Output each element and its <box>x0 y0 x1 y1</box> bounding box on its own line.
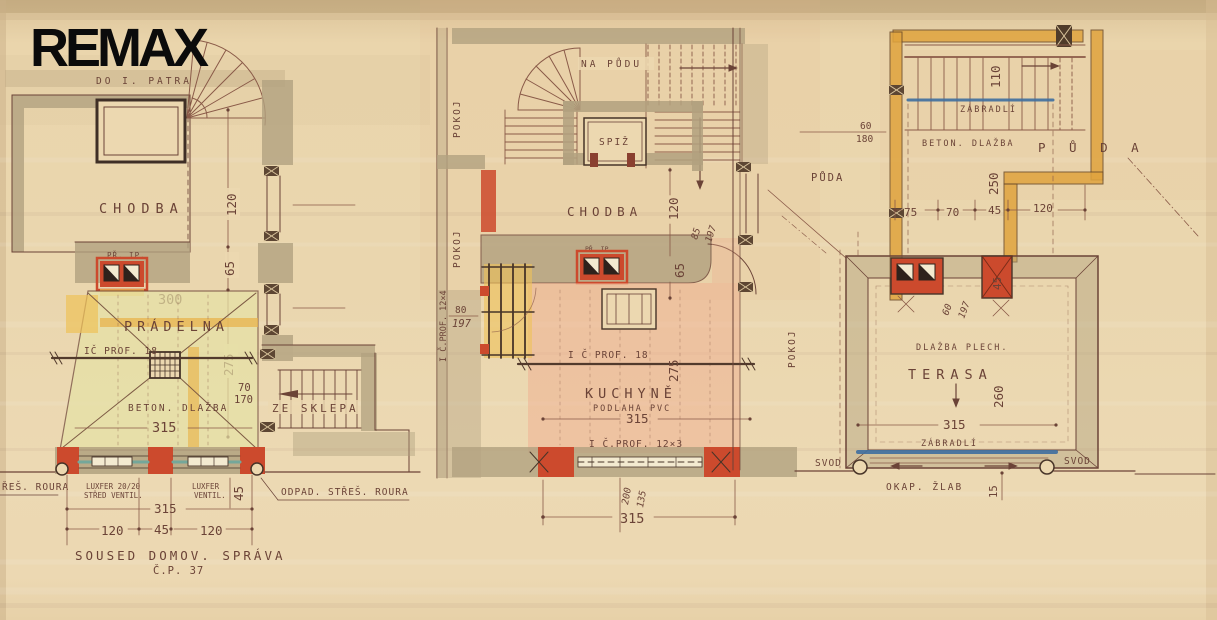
dim-45: 45 <box>154 522 169 537</box>
label-ze-sklepa: ZE SKLEPA <box>272 402 359 415</box>
label-puda: PŮDA <box>811 171 844 184</box>
balcony-ladder <box>480 264 536 358</box>
dim-75: 75 <box>904 206 917 219</box>
label-ic-prof-18: IČ PROF. 18 <box>84 345 158 357</box>
dim-110: 110 <box>988 65 1003 88</box>
dim-170: 170 <box>234 394 253 406</box>
dim-250: 250 <box>986 172 1001 195</box>
dim-275: 275 <box>666 359 681 382</box>
window-symbol <box>577 251 627 283</box>
label-beton-dlazba: BETON. DLAŽBA <box>922 137 1015 149</box>
dim-260: 260 <box>991 385 1006 408</box>
label-cp-37: Č.P. 37 <box>153 564 204 577</box>
remax-logo-text: REMAX <box>30 18 209 78</box>
dim-180: 180 <box>856 134 873 145</box>
dim-70: 70 <box>238 382 251 394</box>
label-dlazba-plech: DLAŽBA PLECH. <box>916 341 1009 353</box>
label-na-pudu: NA PŮDU <box>581 58 642 70</box>
label-spiz: SPIŽ <box>599 136 630 148</box>
label-pokoj-2: POKOJ <box>452 229 463 268</box>
label-prof-18: I Č PROF. 18 <box>568 349 649 361</box>
stairwell-opening <box>97 100 185 162</box>
label-pokoj-1: POKOJ <box>452 99 463 138</box>
label-pradelna: PRÁDELNA <box>124 318 229 335</box>
label-pokoj-3: POKOJ <box>787 329 798 368</box>
label-zabradli-bottom: ZÁBRADLÍ <box>921 437 978 449</box>
dim-45-rot: 45 <box>231 486 246 501</box>
wall-red <box>481 170 496 232</box>
label-puda-spaced: P Ů D A <box>1038 140 1147 155</box>
label-prof-12x4: I Č.PROF. 12×4 <box>437 290 449 362</box>
bottom-wall <box>452 447 797 477</box>
label-zabradli-top: ZÁBRADLÍ <box>960 103 1017 115</box>
remax-logo: REMAX <box>30 18 209 78</box>
dim-70: 70 <box>946 206 959 219</box>
dim-315-a: 315 <box>626 411 649 426</box>
chimney-block <box>891 258 943 294</box>
dim-80: 80 <box>455 305 467 316</box>
dim-315-b: 315 <box>154 501 177 516</box>
window-symbol <box>97 258 147 290</box>
floor-plan-drawing: DO I. PATRA CHODBA 120 65 275 <box>0 0 1217 620</box>
wall-stub <box>437 155 485 169</box>
label-soused: SOUSED DOMOV. SPRÁVA <box>75 548 286 563</box>
dim-120: 120 <box>1033 202 1053 215</box>
dim-60-a: 60 <box>860 121 872 132</box>
downpipe <box>1040 460 1054 474</box>
dim-45-b: 45 <box>991 277 1004 290</box>
label-svod-right: SVOD <box>1064 456 1091 467</box>
label-kuchyne: KUCHYNĚ <box>585 385 677 402</box>
dim-120-b: 120 <box>200 523 223 538</box>
kitchen-window-shaft <box>602 289 656 329</box>
downpipe <box>56 463 68 475</box>
label-luxfer-2b: VENTIL. <box>194 491 226 500</box>
label-luxfer-2a: LUXFER <box>192 482 220 491</box>
downpipe <box>251 463 263 475</box>
scanned-floor-plan: DO I. PATRA CHODBA 120 65 275 <box>0 0 1217 620</box>
wall <box>452 28 745 44</box>
pillar <box>704 447 740 477</box>
dim-45-a: 45 <box>988 204 1001 217</box>
label-okap-zlab: OKAP. ŽLAB <box>886 481 963 493</box>
label-svod-left: SVOD <box>815 458 842 469</box>
pillar <box>538 447 574 477</box>
label-luxfer-1b: STŘED VENTIL. <box>84 491 143 500</box>
dim-120: 120 <box>224 193 239 216</box>
label-chodba: CHODBA <box>567 204 642 219</box>
label-terasa: TERASA <box>908 367 993 383</box>
label-luxfer-1a: LUXFER 20/20 <box>86 482 141 491</box>
dim-120: 120 <box>666 197 681 220</box>
label-stres-roura: ŘEŠ. ROURA <box>2 481 69 493</box>
label-beton-dlazba: BETON. DLAŽBA <box>128 402 228 414</box>
dim-315: 315 <box>152 420 176 436</box>
dim-315-b: 315 <box>620 511 644 527</box>
dim-65: 65 <box>672 263 687 278</box>
dim-197-b: 197 <box>452 318 472 330</box>
label-odpad: ODPAD. STŘEŠ. ROURA <box>281 486 409 498</box>
label-chodba: CHODBA <box>99 201 184 217</box>
dim-65: 65 <box>222 261 237 276</box>
dim-315: 315 <box>943 417 966 432</box>
pillar <box>148 447 173 474</box>
dim-120-a: 120 <box>101 523 124 538</box>
downpipe <box>853 460 867 474</box>
dim-15: 15 <box>988 485 1000 498</box>
